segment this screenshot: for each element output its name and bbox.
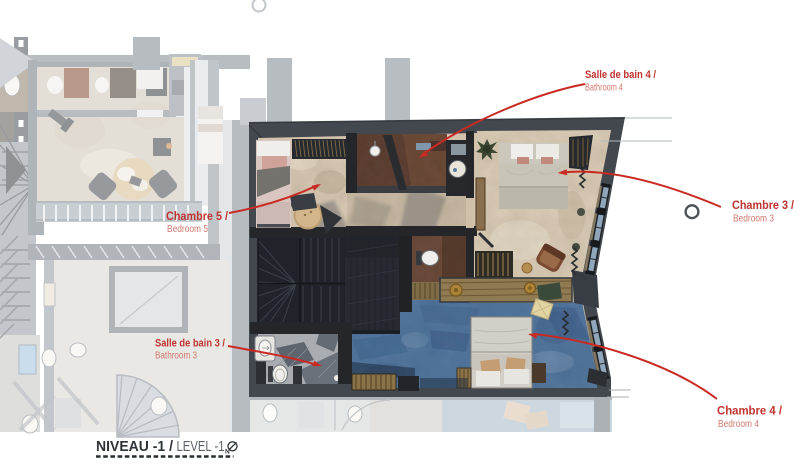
svg-text:NIVEAU -1 /: NIVEAU -1 / xyxy=(96,439,173,455)
svg-text:Salle de bain 3 /: Salle de bain 3 / xyxy=(155,338,225,350)
svg-text:Bathroom 4: Bathroom 4 xyxy=(585,83,623,94)
svg-text:Bedroom 3: Bedroom 3 xyxy=(733,213,774,225)
svg-text:Chambre 3 /: Chambre 3 / xyxy=(732,198,795,212)
svg-text:LEVEL -1: LEVEL -1 xyxy=(177,439,225,455)
svg-text:Chambre 4 /: Chambre 4 / xyxy=(717,404,783,418)
svg-text:Bedroom 4: Bedroom 4 xyxy=(718,418,759,430)
svg-text:Salle de bain 4 /: Salle de bain 4 / xyxy=(585,69,656,81)
svg-text:Bathroom 3: Bathroom 3 xyxy=(155,351,197,362)
svg-text:Chambre 5 /: Chambre 5 / xyxy=(166,209,229,223)
svg-text:Bedroom 5: Bedroom 5 xyxy=(167,223,208,235)
